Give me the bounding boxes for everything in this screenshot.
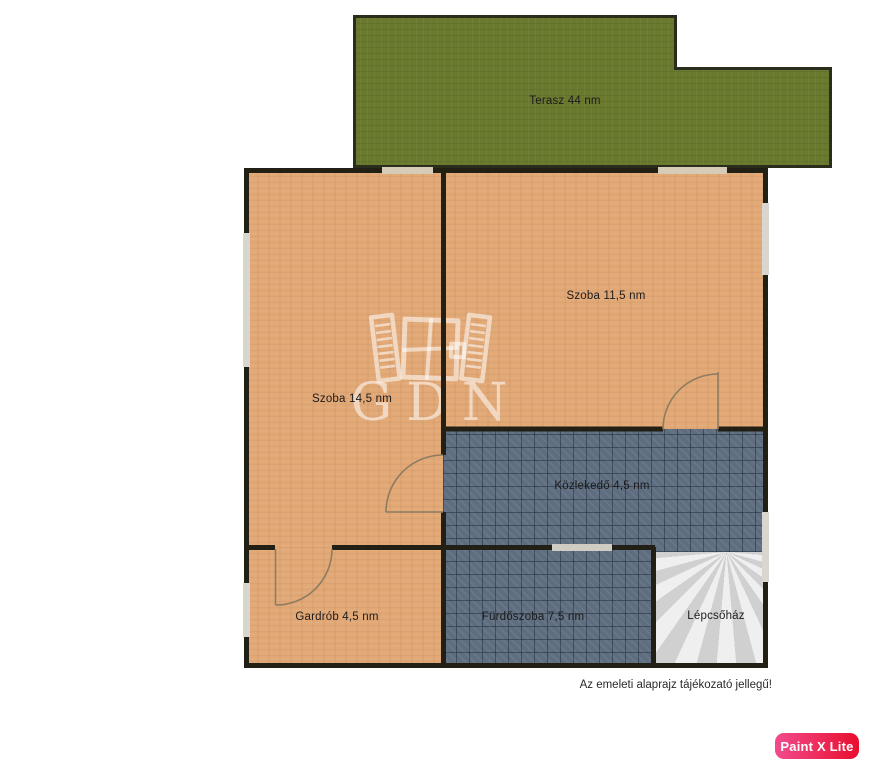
terrace-outline [355,17,831,167]
door-gardrob [276,549,333,605]
label-lepcsohaz: Lépcsőház [687,610,744,622]
door-szoba145 [386,455,443,512]
paint-x-lite-badge: Paint X Lite [775,733,859,759]
paint-x-lite-label: Paint X Lite [780,739,853,754]
label-szoba-14-5: Szoba 14,5 nm [312,393,392,405]
disclaimer-note: Az emeleti alaprajz tájékozató jellegű! [580,679,772,691]
label-furdoszoba: Fürdőszoba 7,5 nm [482,611,584,623]
label-szoba-11-5: Szoba 11,5 nm [566,290,645,302]
label-kozlekedo: Közlekedő 4,5 nm [554,480,649,492]
walls-overlay [0,0,876,768]
label-gardrob: Gardrób 4,5 nm [295,611,378,623]
floor-plan: GDN [0,0,876,768]
door-szoba115 [663,372,718,429]
label-terasz: Terasz 44 nm [529,95,600,107]
